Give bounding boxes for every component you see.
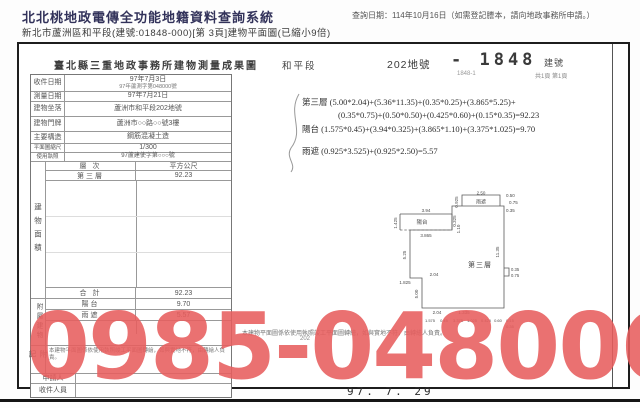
dim-canopy-step2: 0.35 bbox=[506, 208, 515, 213]
dim-canopy-left: 0.925 bbox=[454, 196, 459, 208]
row-value: 97年7月21日 bbox=[65, 92, 231, 101]
dim-mid: 2.04 bbox=[430, 272, 439, 277]
formula-floor3-cont: (0.35*0.75)+(0.50*0.50)+(0.425*0.60)+(0.… bbox=[302, 109, 637, 122]
table-row: 建物坐落 蘆洲市和平段202地號 bbox=[31, 102, 231, 117]
balcony-label: 陽台 bbox=[416, 218, 428, 226]
row-label: 建物坐落 bbox=[31, 102, 65, 116]
row-value: 97蘆建使字第○○○號 bbox=[65, 153, 231, 161]
area-row-floor3: 第三層 92.23 bbox=[46, 171, 231, 181]
floor-area: 92.23 bbox=[136, 171, 231, 180]
formula-canopy: 雨遮 (0.925*3.525)+(0.925*2.50)=5.57 bbox=[302, 145, 637, 158]
system-title: 北北桃地政電傳全功能地籍資料查詢系統 bbox=[22, 7, 274, 26]
dim-canopy-top: 2.50 bbox=[477, 191, 486, 196]
dim-notch-a: 0.35 bbox=[511, 267, 520, 272]
pen-squiggle-mark bbox=[281, 92, 307, 176]
dim-top: 3.94 bbox=[422, 208, 431, 213]
building-area-section: 建物面積 層 次 平方公尺 第三層 92.23 bbox=[31, 162, 231, 299]
row-label: 主要構造 bbox=[31, 132, 65, 143]
row-label: 測量日期 bbox=[31, 92, 65, 101]
land-section: 和平段 bbox=[282, 58, 317, 72]
floor-name: 第三層 bbox=[46, 171, 136, 180]
table-row: 平面圖縮尺 1/300 bbox=[31, 144, 231, 153]
page-note: 共1頁 第1頁 bbox=[535, 71, 567, 80]
table-row: 主要構造 鋼筋混凝土造 bbox=[31, 132, 231, 144]
dim-canopy-step1: 0.75 bbox=[509, 200, 518, 205]
area-formulas: 第三層 (5.00*2.04)+(5.36*11.35)+(0.35*0.25)… bbox=[302, 96, 637, 158]
row-label: 建物門牌 bbox=[31, 117, 65, 131]
row-value: 鋼筋混凝土造 bbox=[65, 132, 231, 143]
building-number-label: 建號 bbox=[544, 56, 564, 69]
dim-canopy-right: 0.50 bbox=[506, 193, 515, 198]
form-title: 臺北縣三重地政事務所建物測量成果圖 bbox=[54, 57, 258, 72]
formula-floor3: 第三層 (5.00*2.04)+(5.36*11.35)+(0.35*0.25)… bbox=[302, 96, 637, 109]
row-value: 蘆洲市○○路○○號3樓 bbox=[65, 117, 231, 131]
row-value: 97年7月3日 bbox=[130, 76, 167, 84]
table-row: 建物門牌 蘆洲市○○路○○號3樓 bbox=[31, 117, 231, 132]
canopy-label: 雨遮 bbox=[476, 199, 486, 206]
table-row: 測量日期 97年7月21日 bbox=[31, 92, 231, 102]
page: 北北桃地政電傳全功能地籍資料查詢系統 新北市蘆洲區和平段(建號:01848-00… bbox=[0, 0, 640, 408]
table-row: 收件日期 97年7月3日 97年蘆測字第048000號 bbox=[31, 75, 231, 92]
col-header-area: 平方公尺 bbox=[136, 162, 231, 170]
dim-balcony-depth: 1.10 bbox=[456, 224, 461, 233]
dim-left-top: 1.425 bbox=[393, 217, 398, 229]
building-number-stamp: - 1848 bbox=[451, 50, 536, 70]
row-value: 蘆洲市和平段202地號 bbox=[65, 102, 231, 116]
dim-left-low: 1.825 bbox=[399, 280, 411, 285]
row-label: 使用執照 bbox=[31, 153, 65, 161]
formula-balcony: 陽台 (1.575*0.45)+(3.94*0.325)+(3.865*1.10… bbox=[302, 123, 637, 136]
row-label: 平面圖縮尺 bbox=[31, 144, 65, 152]
query-date: 查詢日期：114年10月16日（如需登記謄本，請向地政事務所申請。） bbox=[352, 10, 595, 21]
dim-notch-b: 0.75 bbox=[511, 273, 520, 278]
floor-label: 第三層 bbox=[468, 260, 492, 269]
dim-right-wall: 11.35 bbox=[495, 246, 500, 257]
building-area-vertical-label: 建物面積 bbox=[31, 162, 46, 298]
row-value: 1/300 bbox=[65, 144, 231, 152]
dim-left-mid: 5.25 bbox=[402, 250, 407, 259]
building-number-sub: 1848-1 bbox=[457, 71, 476, 77]
col-header-floor: 層 次 bbox=[46, 162, 136, 170]
document-subtitle: 新北市蘆洲區和平段(建號:01848-000)[第 3頁]建物平面圖(已縮小9倍… bbox=[22, 25, 331, 39]
parcel-number: 202地號 bbox=[387, 57, 431, 72]
row-label: 收件日期 bbox=[31, 75, 65, 91]
dim-dashed: 3.865 bbox=[420, 233, 432, 238]
empty-rows bbox=[46, 181, 231, 288]
watermark: 0985-048006 bbox=[26, 293, 640, 400]
row-value-2: 97年蘆測字第048000號 bbox=[119, 84, 176, 91]
table-row: 使用執照 97蘆建使字第○○○號 bbox=[31, 153, 231, 162]
